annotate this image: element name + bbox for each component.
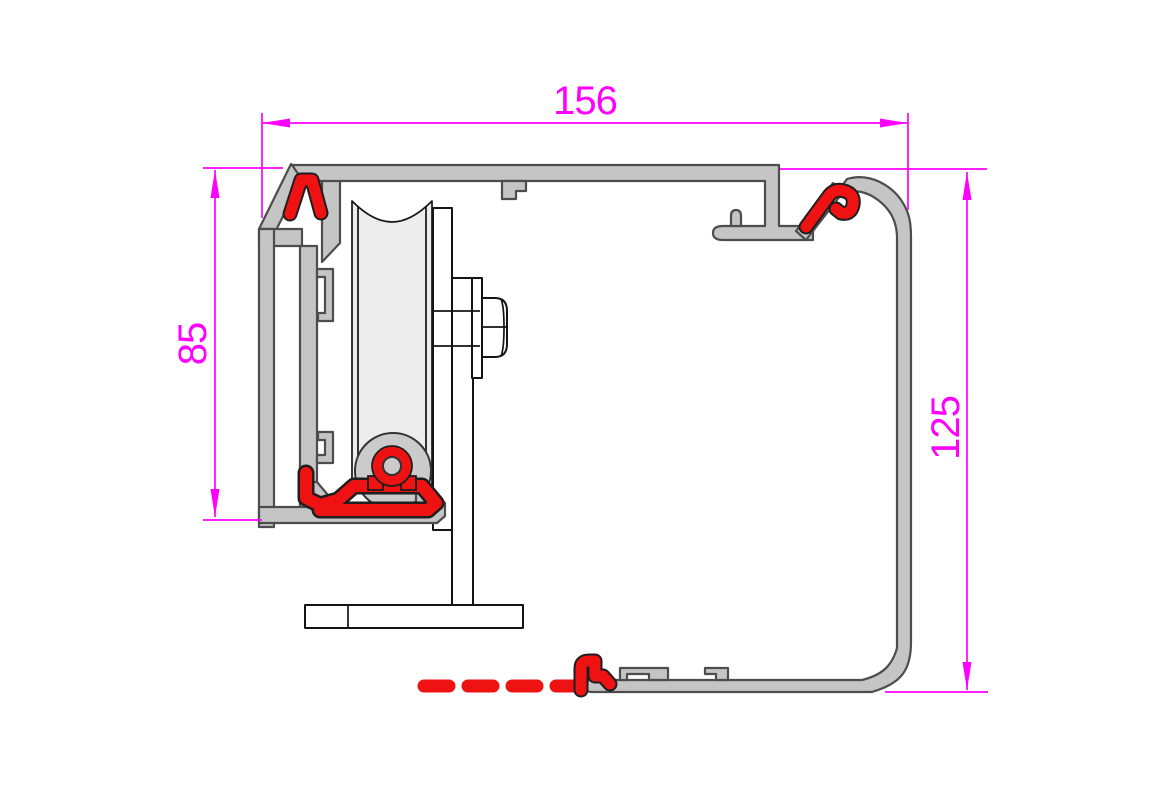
ring-hole <box>383 457 401 475</box>
right-cover-profile <box>585 177 911 692</box>
foot-plate <box>305 605 523 628</box>
inner-wall-upper-rib <box>317 269 333 321</box>
dimension-right-height: 125 <box>780 169 988 692</box>
right-cover-wall <box>585 177 911 692</box>
upper-right-gasket <box>806 190 853 227</box>
arrow-up <box>963 172 972 200</box>
dim-label-top-width: 156 <box>553 79 617 123</box>
drawing-canvas: 156 85 125 <box>0 0 1176 792</box>
glazing-channel-inner-wall <box>322 179 340 262</box>
bracket-column <box>452 278 473 605</box>
bottom-rail-hook-2 <box>705 668 728 680</box>
upper-left-gasket-body <box>290 180 321 214</box>
floor-seal-dashed <box>424 661 610 690</box>
bottom-rail-hook-1 <box>620 668 668 680</box>
arrow-up <box>211 170 220 198</box>
dim-label-left-height: 85 <box>171 323 215 366</box>
arrow-down <box>211 489 220 517</box>
left-channel-wall <box>259 229 274 527</box>
upper-left-gasket <box>290 180 321 214</box>
dimension-top-width: 156 <box>262 79 908 218</box>
rail-center-hook <box>502 181 526 199</box>
bracket-plate <box>433 208 452 530</box>
inner-support-wall <box>300 246 317 492</box>
profile-section-drawing: 156 85 125 <box>0 0 1176 792</box>
dim-label-right-height: 125 <box>924 396 968 460</box>
arrow-left <box>262 119 290 128</box>
inner-wall-lower-rib <box>317 432 333 463</box>
bracket-foot <box>305 605 523 628</box>
hanger-arm-tab <box>731 210 741 226</box>
roller-bracket-assembly <box>433 208 507 605</box>
arrow-right <box>880 119 908 128</box>
axle-washer <box>472 278 482 378</box>
arrow-down <box>963 662 972 690</box>
